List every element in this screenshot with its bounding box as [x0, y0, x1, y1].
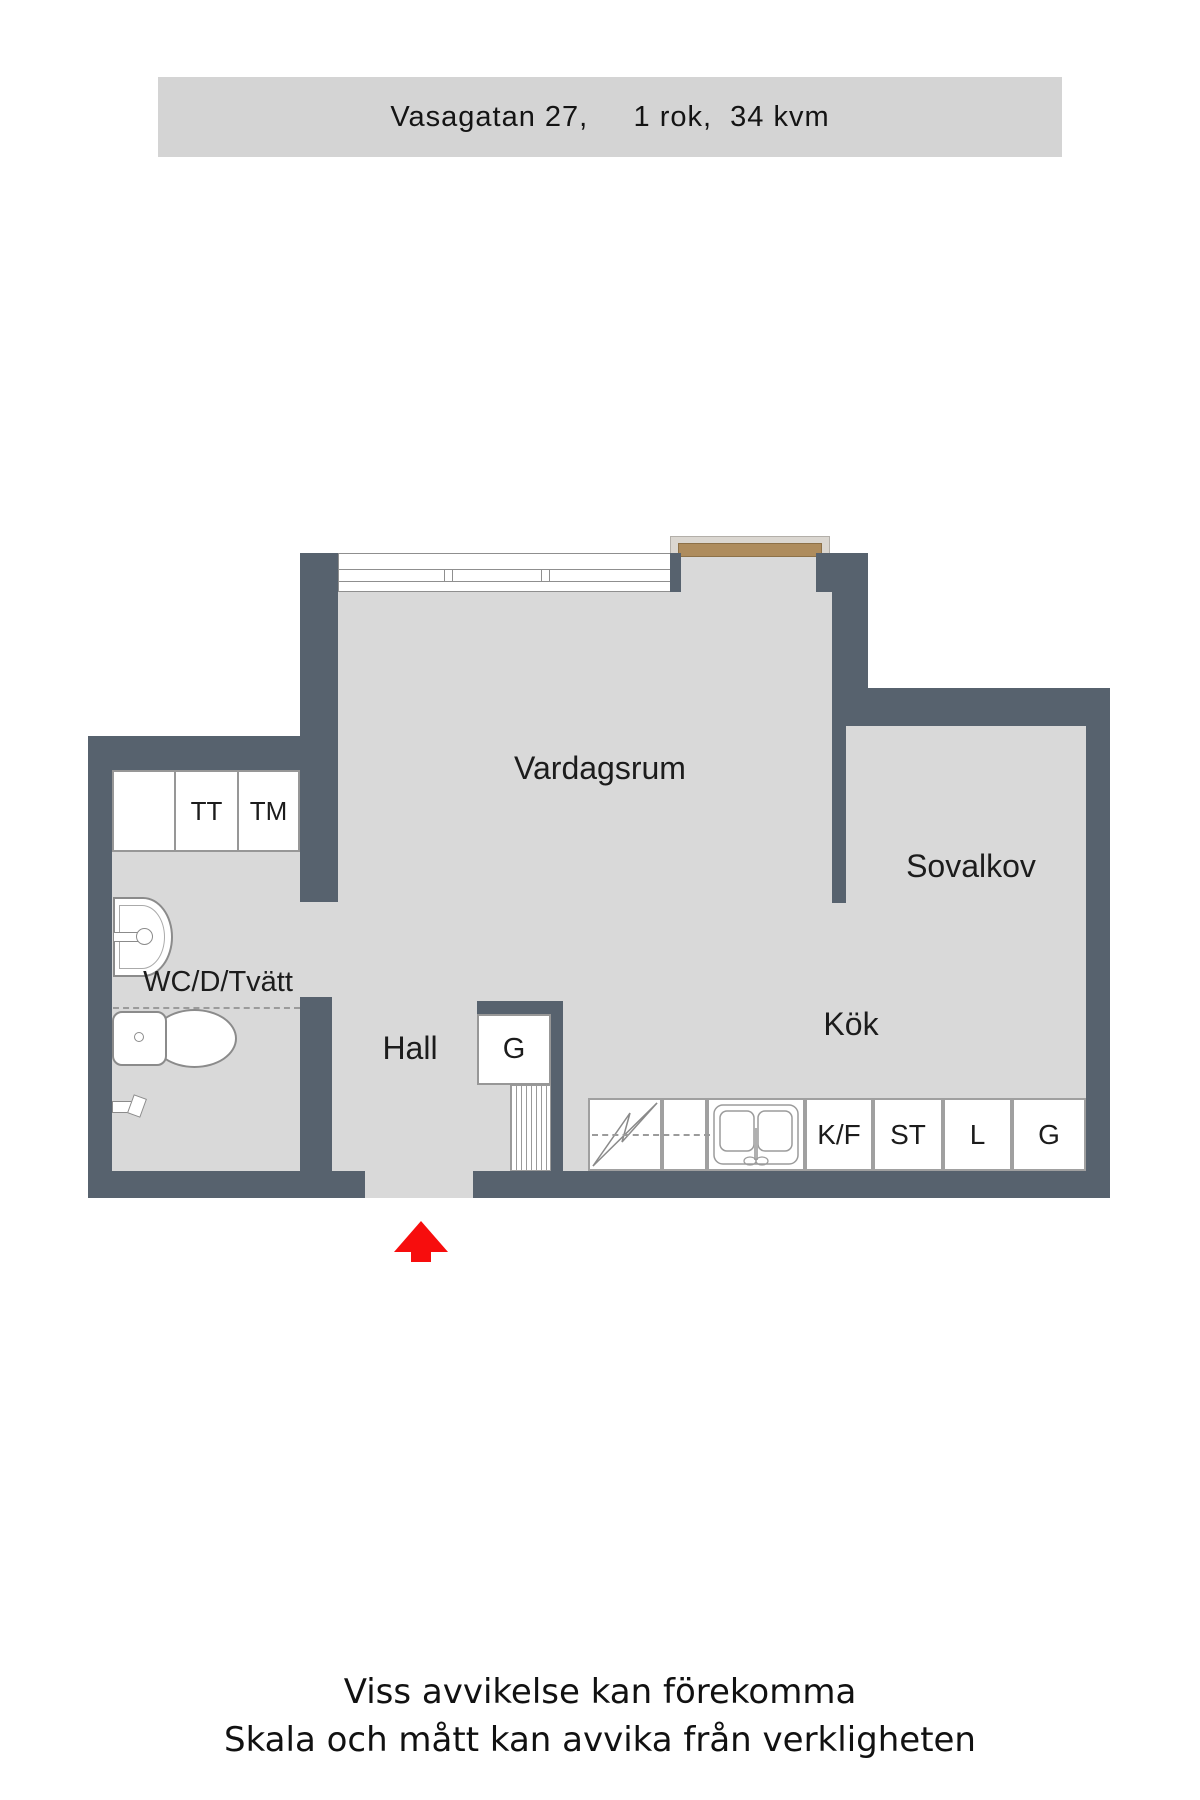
wall-bottom-left: [88, 1171, 365, 1198]
wall-closet-top: [477, 1001, 563, 1014]
room-label-livingroom: Vardagsrum: [450, 750, 750, 787]
address-title: Vasagatan 27, 1 rok, 34 kvm: [390, 101, 829, 134]
loft-stairs: [510, 1085, 551, 1171]
cabinet-washer-label: TM: [250, 796, 288, 827]
kitchen-fridge-freezer: K/F: [805, 1098, 873, 1171]
wall-right-exterior: [1086, 688, 1110, 1198]
floor-living-hall: [338, 556, 832, 1171]
counter-dashed-line: [592, 1134, 710, 1136]
wc-sink-knob: [136, 928, 153, 945]
window-divider: [452, 569, 453, 581]
floor-entrance-threshold: [365, 1171, 473, 1198]
wall-bottom-right: [473, 1171, 1110, 1198]
kitchen-sink-icon: [709, 1100, 803, 1169]
room-label-sleeping-alcove: Sovalkov: [821, 848, 1121, 885]
fridge-freezer-label: K/F: [817, 1119, 861, 1151]
wall-balcony-stub: [670, 553, 681, 592]
wall-wc-hall-divider: [300, 997, 332, 1171]
kitchen-closet-label: G: [1038, 1119, 1060, 1151]
room-label-wc: WC/D/Tvätt: [118, 966, 318, 999]
window-band: [338, 553, 672, 592]
cabinet-dryer: TT: [174, 770, 239, 852]
cabinet-washer: TM: [237, 770, 300, 852]
room-label-hall: Hall: [310, 1030, 510, 1067]
pantry-label: L: [970, 1119, 986, 1151]
kitchen-sink: [707, 1098, 805, 1171]
disclaimer: Viss avvikelse kan förekomma Skala och m…: [0, 1668, 1200, 1764]
kitchen-pantry: L: [943, 1098, 1012, 1171]
window-frame-line: [339, 569, 671, 570]
shower-partition-dashed-line: [113, 1007, 300, 1009]
kitchen-stove: ST: [873, 1098, 943, 1171]
wall-sovalkov-top: [832, 688, 1110, 726]
kitchen-closet: G: [1012, 1098, 1086, 1171]
disclaimer-line-1: Viss avvikelse kan förekomma: [0, 1668, 1200, 1716]
cabinet-dryer-label: TT: [191, 796, 223, 827]
stove-label: ST: [890, 1119, 926, 1151]
floorplan-page: Vasagatan 27, 1 rok, 34 kvm TT TM: [0, 0, 1200, 1800]
room-label-kitchen: Kök: [701, 1006, 1001, 1043]
toilet-flush-button: [134, 1032, 144, 1042]
balcony-door: [678, 543, 822, 557]
wall-closet-right: [551, 1014, 563, 1171]
window-divider: [549, 569, 550, 581]
entrance-arrow-icon: [394, 1221, 448, 1263]
window-frame-line: [339, 581, 671, 582]
window-divider: [444, 569, 445, 581]
wall-left-exterior: [88, 736, 112, 1198]
disclaimer-line-2: Skala och mått kan avvika från verklighe…: [0, 1716, 1200, 1764]
cabinet-blank: [112, 770, 176, 852]
wall-livingroom-left: [300, 553, 338, 902]
window-divider: [541, 569, 542, 581]
wall-livingroom-right: [832, 553, 868, 688]
address-header-bar: Vasagatan 27, 1 rok, 34 kvm: [158, 77, 1062, 157]
